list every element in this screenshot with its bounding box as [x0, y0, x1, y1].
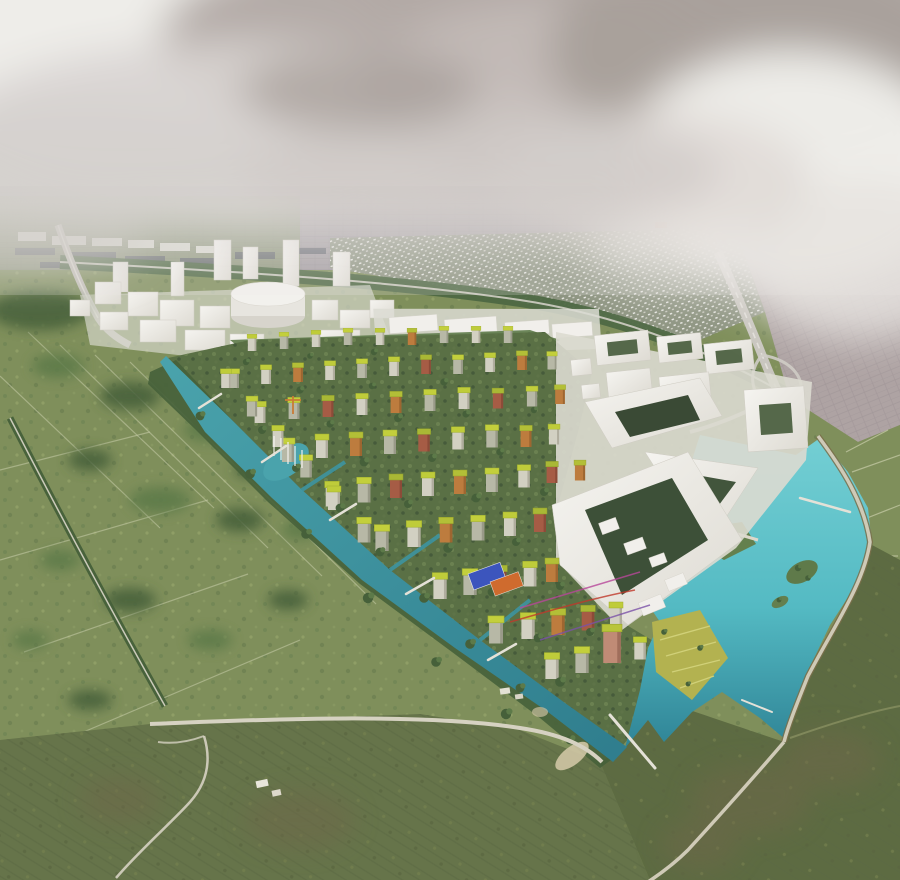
- pink-waterfront-building: [602, 624, 622, 663]
- aerial-rendering: [0, 0, 900, 880]
- east-courtyard-block: [744, 386, 808, 452]
